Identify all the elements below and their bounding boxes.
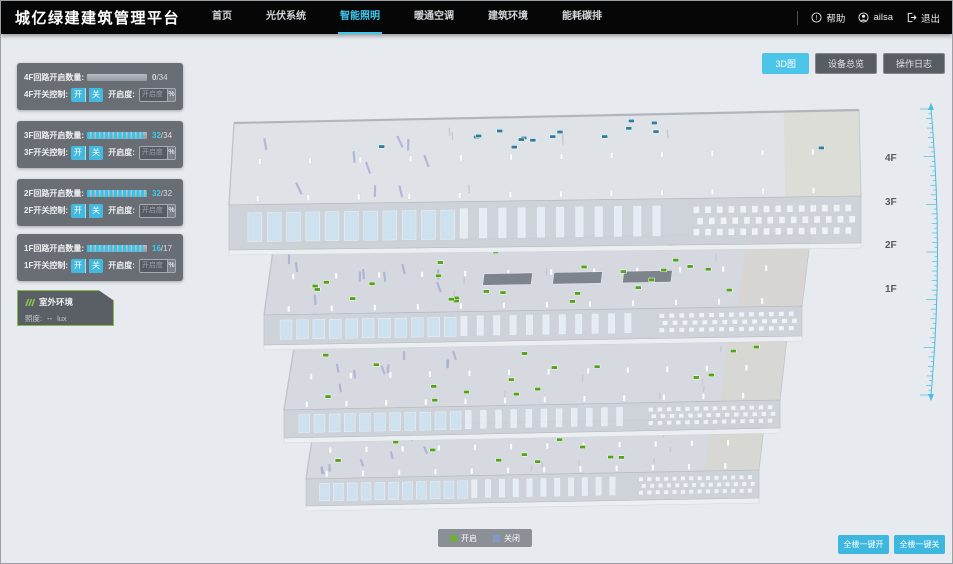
lux-value: --: [47, 314, 52, 323]
nav-item-home[interactable]: 首页: [210, 1, 234, 34]
floor-panel-4f: 4F回路开启数量: 0/34 4F开关控制: 开 关 开启度: %: [17, 63, 183, 110]
switch-off-button[interactable]: 关: [89, 259, 104, 273]
floor-scale-ruler: [907, 101, 951, 403]
user-name: ailsa: [873, 12, 893, 23]
legend-on-swatch: [450, 535, 457, 542]
floor-panel-1f: 1F回路开启数量: 16/17 1F开关控制: 开 关 开启度: %: [17, 234, 183, 281]
dim-input[interactable]: [140, 89, 167, 101]
user-menu[interactable]: ailsa: [858, 12, 893, 23]
dim-control: %: [139, 259, 176, 273]
floor-panel-3f: 3F回路开启数量: 32/34 3F开关控制: 开 关 开启度: %: [17, 121, 183, 168]
dim-input[interactable]: [140, 260, 167, 272]
circuit-count-value: 0/34: [152, 73, 168, 82]
lux-unit: lux: [57, 314, 67, 323]
nav-item-energy[interactable]: 能耗碳排: [560, 1, 604, 34]
all-off-button[interactable]: 全楼一键关: [894, 535, 945, 554]
switch-off-button[interactable]: 关: [89, 204, 104, 218]
nav-item-lighting[interactable]: 智能照明: [338, 1, 382, 34]
header-actions: ! 帮助 ailsa 退出: [797, 11, 940, 25]
operation-log-button[interactable]: 操作日志: [883, 53, 945, 74]
switch-control-label: 1F开关控制:: [24, 260, 68, 271]
circuit-count-label: 4F回路开启数量:: [24, 72, 84, 83]
circuit-count-value: 32/32: [152, 189, 172, 198]
lux-label: 照度:: [25, 313, 42, 324]
header-divider: [797, 11, 798, 25]
logout-icon: [906, 12, 917, 23]
header: 城亿绿建建筑管理平台 首页 光伏系统 智能照明 暖通空调 建筑环境 能耗碳排 !…: [1, 1, 952, 34]
dim-control: %: [139, 146, 176, 160]
switch-on-button[interactable]: 开: [71, 146, 86, 160]
dim-control: %: [139, 204, 176, 218]
user-icon: [858, 12, 869, 23]
percent-button[interactable]: %: [167, 147, 175, 159]
dim-label: 开启度:: [108, 147, 135, 158]
floor-label-2f[interactable]: 2F: [885, 240, 897, 251]
page-title: 城亿绿建建筑管理平台: [15, 7, 180, 28]
help-icon: !: [811, 12, 822, 23]
circuit-count-value: 16/17: [152, 244, 172, 253]
dim-input[interactable]: [140, 147, 167, 159]
logout-link[interactable]: 退出: [906, 11, 940, 25]
view-mode-buttons: 3D图 设备总览 操作日志: [762, 53, 945, 74]
outdoor-env-title: 室外环境: [39, 296, 73, 308]
legend-off-swatch: [493, 535, 500, 542]
main-nav: 首页 光伏系统 智能照明 暖通空调 建筑环境 能耗碳排: [210, 1, 604, 34]
logout-label: 退出: [921, 11, 940, 25]
floor-label-4f[interactable]: 4F: [885, 153, 897, 164]
percent-button[interactable]: %: [167, 205, 175, 217]
circuit-progress-bar: [87, 132, 147, 139]
nav-item-pv[interactable]: 光伏系统: [264, 1, 308, 34]
dim-label: 开启度:: [108, 89, 135, 100]
floor-panel-2f: 2F回路开启数量: 32/32 2F开关控制: 开 关 开启度: %: [17, 179, 183, 226]
switch-control-label: 2F开关控制:: [24, 205, 68, 216]
help-link[interactable]: ! 帮助: [811, 11, 845, 25]
outdoor-env-panel: 室外环境 照度: -- lux: [17, 290, 114, 326]
switch-control-label: 4F开关控制:: [24, 89, 68, 100]
switch-control-label: 3F开关控制:: [24, 147, 68, 158]
switch-off-button[interactable]: 关: [89, 146, 104, 160]
switch-on-button[interactable]: 开: [71, 88, 86, 102]
switch-on-button[interactable]: 开: [71, 204, 86, 218]
circuit-progress-bar: [87, 190, 147, 197]
floor-label-1f[interactable]: 1F: [885, 284, 897, 295]
nav-item-hvac[interactable]: 暖通空调: [412, 1, 456, 34]
circuit-progress-bar: [87, 245, 147, 252]
nav-item-env[interactable]: 建筑环境: [486, 1, 530, 34]
light-status-legend: 开启 关闭: [438, 529, 532, 547]
percent-button[interactable]: %: [167, 89, 175, 101]
dim-input[interactable]: [140, 205, 167, 217]
smart-lighting-page: 城亿绿建建筑管理平台 首页 光伏系统 智能照明 暖通空调 建筑环境 能耗碳排 !…: [0, 0, 953, 564]
percent-button[interactable]: %: [167, 260, 175, 272]
circuit-count-label: 1F回路开启数量:: [24, 243, 84, 254]
all-on-button[interactable]: 全楼一键开: [838, 535, 889, 554]
floor-label-3f[interactable]: 3F: [885, 197, 897, 208]
switch-off-button[interactable]: 关: [89, 88, 104, 102]
dim-label: 开启度:: [108, 260, 135, 271]
dim-label: 开启度:: [108, 205, 135, 216]
circuit-count-label: 3F回路开启数量:: [24, 130, 84, 141]
outdoor-env-icon: [25, 298, 35, 307]
dim-control: %: [139, 88, 176, 102]
legend-off-label: 关闭: [504, 533, 520, 544]
switch-on-button[interactable]: 开: [71, 259, 86, 273]
view-3d-button[interactable]: 3D图: [762, 53, 809, 74]
circuit-count-value: 32/34: [152, 131, 172, 140]
svg-text:!: !: [816, 15, 818, 22]
help-label: 帮助: [826, 11, 845, 25]
legend-on-label: 开启: [461, 533, 477, 544]
building-actions: 全楼一键开 全楼一键关: [838, 535, 945, 554]
circuit-count-label: 2F回路开启数量:: [24, 188, 84, 199]
circuit-progress-bar: [87, 74, 147, 81]
building-3d-view[interactable]: [204, 93, 888, 543]
device-overview-button[interactable]: 设备总览: [815, 53, 877, 74]
